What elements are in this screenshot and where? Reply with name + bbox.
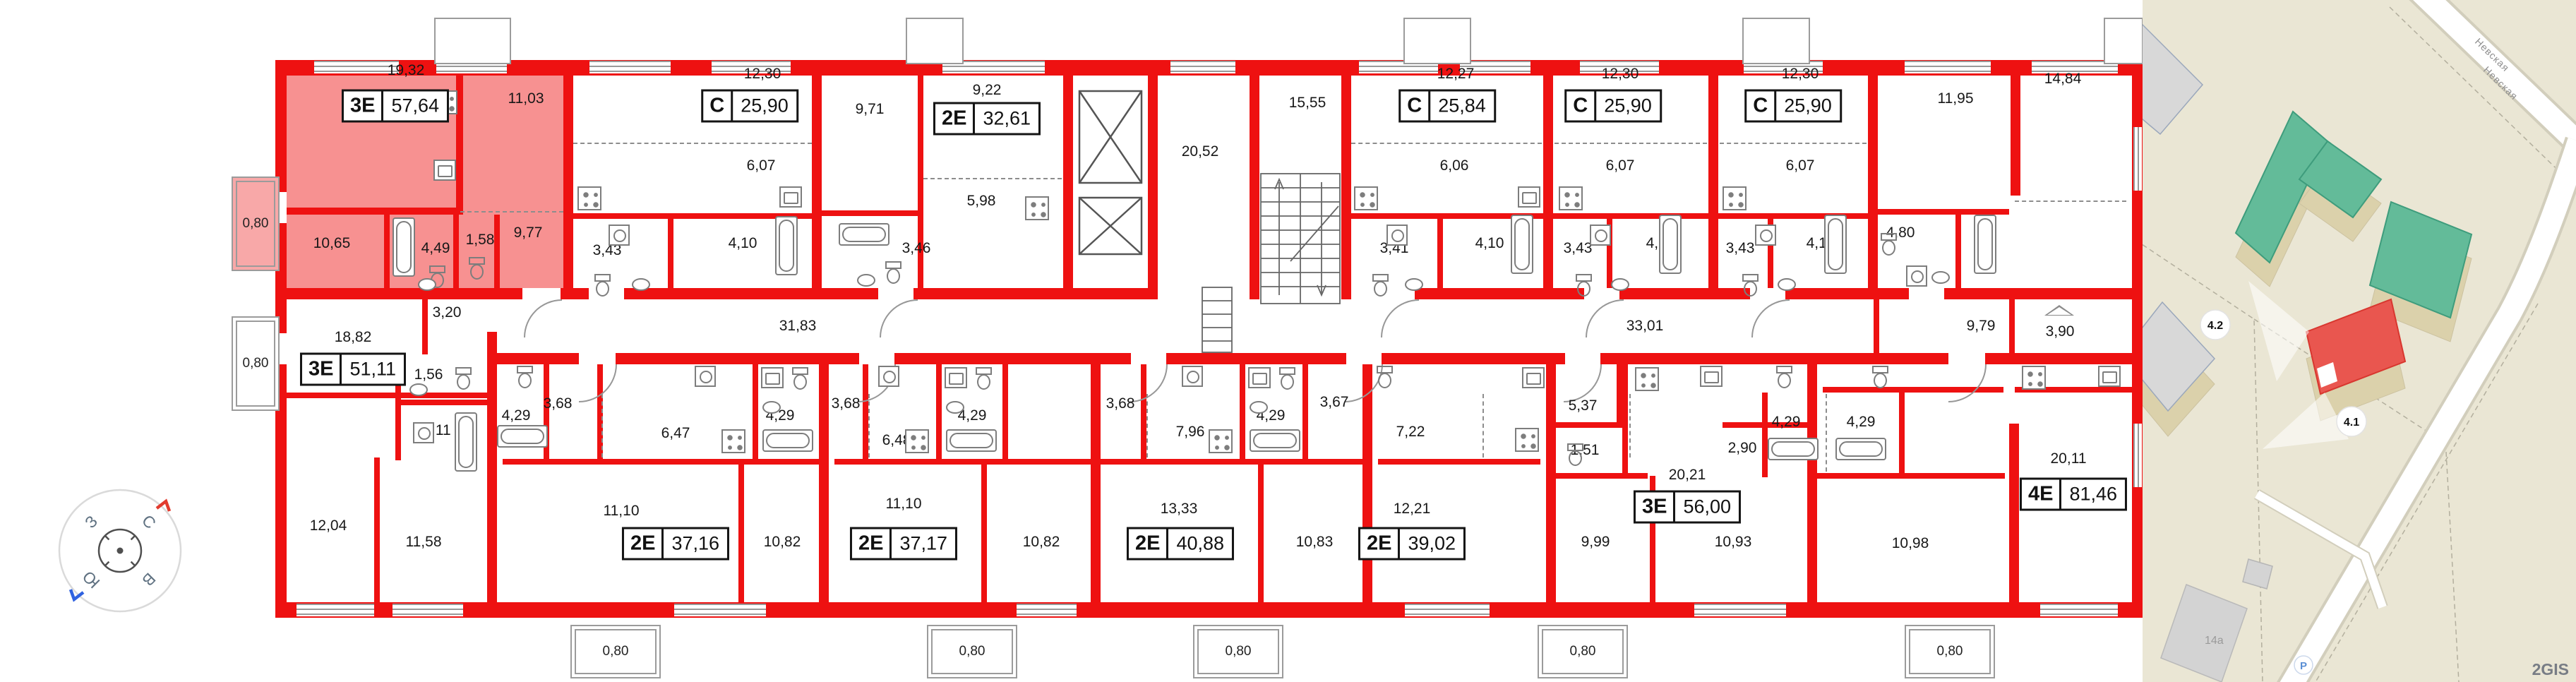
sink-icon	[779, 186, 802, 208]
wall	[1556, 422, 1622, 428]
apartment-badge-selected[interactable]: 3Е57,64	[342, 90, 449, 123]
basin-icon	[946, 401, 964, 414]
door-swing-icon	[579, 364, 617, 402]
apartment-area-value: 37,17	[892, 530, 955, 558]
door-swing-icon	[1751, 299, 1790, 337]
stove-icon	[1515, 428, 1539, 452]
toilet-icon	[1776, 366, 1793, 388]
wall	[1091, 364, 1101, 602]
balcony-area-label: 0,80	[243, 356, 269, 371]
room-area-label: 9,77	[514, 225, 543, 241]
apartment-type-label: С	[1747, 92, 1776, 121]
wall	[1002, 364, 1008, 460]
basin-icon	[1931, 271, 1950, 284]
wall	[1341, 288, 2132, 299]
door-opening	[1909, 288, 1944, 299]
zone-dashed-line	[2015, 201, 2126, 202]
stove-icon	[1025, 196, 1049, 220]
room-area-label: 7,22	[1396, 424, 1425, 441]
mini-map[interactable]: 14a Невская Невская 4.2 4.1 P 2GIS	[2143, 0, 2576, 682]
washer-icon	[1755, 225, 1776, 246]
apartment-badge[interactable]: С25,90	[701, 90, 798, 123]
wall	[2011, 76, 2020, 196]
wall	[487, 353, 579, 364]
room-area-label: 3,90	[2046, 323, 2075, 340]
room-area-label: 15,55	[1289, 95, 1326, 112]
wall	[1543, 76, 1553, 299]
toilet-icon	[1567, 443, 1584, 466]
room-area-label: 10,65	[313, 235, 351, 252]
sink-icon	[433, 160, 456, 181]
tub-h-icon	[839, 223, 889, 246]
apartment-plan-page: 0,800,800,800,800,800,800,8019,3211,0310…	[0, 0, 2576, 682]
wall	[1600, 353, 1809, 364]
wall	[738, 465, 744, 602]
apartment-type-label: С	[1566, 92, 1596, 121]
wall	[1708, 76, 1718, 299]
wall	[1148, 76, 1158, 299]
basin-icon	[418, 278, 436, 291]
door-swing-icon	[1564, 364, 1602, 402]
window	[1017, 604, 1077, 616]
wall	[1955, 215, 1961, 288]
balcony-area-label: 0,80	[603, 644, 629, 659]
wall	[275, 602, 2143, 618]
toilet-icon	[517, 366, 534, 388]
stove-icon	[2022, 366, 2046, 390]
stove-icon	[905, 429, 929, 453]
room-area-label: 18,82	[335, 329, 372, 346]
stove-icon	[1723, 186, 1747, 210]
room-area-label: 12,30	[1602, 66, 1639, 83]
washer-icon	[1386, 225, 1408, 246]
balcony-area-label: 0,80	[1937, 644, 1963, 659]
wall	[1382, 353, 1565, 364]
hanger-icon	[2044, 299, 2075, 321]
tub-h-icon	[497, 425, 548, 448]
toilet-icon	[455, 367, 472, 390]
map-badge-42[interactable]: 4.2	[2200, 310, 2230, 340]
room-area-label: 3,68	[1106, 395, 1135, 412]
map-provider-logo: 2GIS	[2532, 660, 2569, 678]
room-area-label: 12,27	[1437, 66, 1475, 83]
compass-north-label: С	[138, 511, 160, 532]
toilet-icon	[792, 367, 809, 390]
facade-bay	[2104, 18, 2143, 64]
apartment-type-label: 2Е	[1360, 530, 1400, 558]
toilet-icon	[1872, 366, 1889, 388]
room-area-label: 10,82	[764, 534, 801, 551]
wall	[1258, 465, 1264, 602]
room-area-label: 3,68	[832, 395, 861, 412]
apartment-area-value: 25,90	[1776, 92, 1840, 121]
basin-icon	[1405, 278, 1423, 291]
zone-dashed-line	[1826, 394, 1827, 472]
wall	[287, 208, 460, 215]
wall	[1556, 473, 1648, 479]
sink-icon	[1700, 366, 1723, 387]
apartment-type-label: С	[1401, 92, 1430, 121]
apartment-area-value: 25,90	[1596, 92, 1660, 121]
tub-v-icon	[1824, 215, 1847, 274]
wall	[2009, 299, 2015, 356]
wall	[1378, 459, 1540, 465]
zone-dashed-line	[460, 211, 563, 213]
floor-plan[interactable]: 0,800,800,800,800,800,800,8019,3211,0310…	[0, 0, 2143, 682]
window	[589, 61, 671, 73]
wall	[1166, 353, 1346, 364]
apartment-badge[interactable]: 2Е32,61	[933, 102, 1041, 136]
svg-text:4.1: 4.1	[2344, 417, 2359, 429]
room-area-label: 4,10	[729, 235, 757, 252]
washer-icon	[695, 366, 716, 387]
sink-icon	[1518, 186, 1540, 208]
room-area-label: 13,33	[1161, 501, 1198, 518]
apartment-badge[interactable]: 2Е37,17	[850, 527, 957, 561]
wall	[1807, 364, 1817, 602]
wall	[1546, 364, 1556, 602]
zone-dashed-line	[1554, 143, 1707, 144]
room-area-label: 19,32	[388, 62, 425, 79]
window	[1905, 61, 1991, 73]
tub-v-icon	[455, 412, 477, 472]
wall	[1878, 209, 2009, 215]
compass-west-label: З	[81, 512, 101, 532]
apartment-type-label: 2Е	[935, 104, 975, 133]
balcony: 0,80	[1905, 625, 1995, 678]
wall	[981, 465, 987, 602]
apartment-badge[interactable]: 2Е39,02	[1358, 527, 1466, 561]
wall	[1063, 288, 1158, 299]
washer-icon	[1182, 366, 1203, 387]
room-area-label: 10,82	[1023, 534, 1060, 551]
apartment-badge[interactable]: 3Е56,00	[1634, 491, 1741, 524]
room-area-label: 1,58	[466, 232, 495, 249]
toilet-icon	[1377, 366, 1394, 388]
room-area-label: 4,10	[1475, 235, 1504, 252]
facade-bay	[1403, 18, 1471, 64]
balcony: 0,80	[1538, 625, 1628, 678]
room-area-label: 11,58	[406, 534, 442, 551]
stove-icon	[1635, 367, 1659, 391]
apartment-badge[interactable]: 4Е81,46	[2020, 478, 2127, 511]
tub-h-icon	[1835, 438, 1886, 460]
zone-dashed-line	[868, 394, 870, 457]
apartment-area-value: 25,84	[1430, 92, 1494, 121]
facade-bay	[1742, 18, 1810, 64]
svg-text:P: P	[2300, 660, 2307, 672]
zone-dashed-line	[1629, 394, 1631, 457]
wall	[1899, 393, 1905, 477]
wall	[936, 364, 942, 460]
wall	[494, 215, 500, 288]
wall	[819, 364, 829, 602]
window	[1694, 604, 1786, 616]
room-area-label: 12,04	[310, 518, 347, 534]
wall	[812, 76, 822, 299]
svg-text:4.2: 4.2	[2207, 320, 2223, 332]
balcony: 0,80	[232, 177, 280, 271]
room-area-label: 5,37	[1569, 397, 1598, 414]
apartment-badge[interactable]: С25,90	[1744, 90, 1842, 123]
apartment-area-value: 51,11	[342, 355, 404, 384]
wall	[1341, 76, 1351, 299]
basin-icon	[409, 383, 428, 396]
door-swing-icon	[880, 299, 918, 337]
apartment-badge[interactable]: 2Е40,88	[1127, 527, 1234, 561]
wall	[563, 76, 573, 299]
wall	[1817, 473, 2005, 479]
sink-icon	[761, 367, 784, 388]
toilet-icon	[1372, 274, 1389, 297]
sink-icon	[945, 367, 967, 388]
window	[1170, 61, 1235, 73]
apartment-area-value: 57,64	[383, 92, 447, 121]
elevator-shafts-icon	[1076, 88, 1146, 263]
apartment-badge[interactable]: С25,84	[1398, 90, 1496, 123]
room-area-label: 3,43	[1564, 240, 1593, 257]
wall	[1101, 459, 1362, 465]
room-area-label: 3,67	[1320, 394, 1349, 411]
apartment-area-value: 25,90	[733, 92, 796, 121]
wall	[453, 215, 459, 288]
staircase-icon	[1258, 168, 1343, 309]
toilet-icon	[1576, 274, 1593, 297]
wall	[503, 459, 819, 465]
balcony: 0,80	[232, 316, 280, 411]
wall	[422, 299, 428, 354]
room-area-label: 11,10	[886, 496, 922, 513]
apartment-area-value: 81,46	[2061, 480, 2125, 509]
wall	[1874, 299, 1879, 356]
window	[1405, 604, 1490, 616]
wall	[374, 457, 380, 602]
tub-v-icon	[1511, 215, 1533, 274]
apartment-badge[interactable]: 2Е37,16	[622, 527, 729, 561]
zone-dashed-line	[1351, 143, 1542, 144]
room-area-label: 10,83	[1296, 534, 1334, 551]
zone-dashed-line	[923, 178, 1062, 179]
room-area-label: 3,43	[1726, 240, 1755, 257]
room-area-label: 31,83	[779, 318, 817, 335]
washer-icon	[1590, 225, 1611, 246]
window	[296, 604, 374, 616]
apartment-badge[interactable]: 3Е51,11	[300, 353, 406, 386]
wall	[834, 459, 1091, 465]
washer-icon	[878, 366, 899, 387]
apartment-type-label: 3Е	[1636, 493, 1675, 522]
room-area-label: 9,99	[1581, 534, 1610, 551]
wall	[1240, 364, 1245, 460]
room-area-label: 10,98	[1892, 535, 1929, 552]
apartment-type-label: 2Е	[1129, 530, 1168, 558]
wall	[1437, 219, 1443, 288]
wall	[894, 353, 1131, 364]
room-area-label: 6,07	[747, 157, 776, 174]
wall	[1302, 364, 1308, 460]
stove-icon	[1354, 186, 1378, 210]
wall	[1362, 364, 1372, 602]
apartment-area-value: 32,61	[975, 104, 1038, 133]
wall	[1985, 353, 2132, 364]
balcony: 0,80	[570, 625, 661, 678]
apartment-type-label: 2Е	[852, 530, 892, 558]
balcony-area-label: 0,80	[959, 644, 986, 659]
tub-h-icon	[762, 429, 813, 452]
window	[2133, 424, 2142, 487]
stove-icon	[577, 186, 601, 210]
wall	[616, 353, 859, 364]
zone-dashed-line	[1146, 394, 1148, 457]
room-area-label: 9,71	[856, 101, 885, 118]
entrance-steps-icon	[1200, 285, 1234, 354]
wall	[1063, 76, 1073, 299]
window	[393, 604, 463, 616]
tub-h-icon	[946, 429, 997, 452]
compass-south-label: Ю	[79, 568, 104, 592]
room-area-label: 20,11	[2051, 450, 2087, 467]
door-swing-icon	[1586, 299, 1624, 337]
room-area-label: 6,47	[661, 425, 690, 442]
sink-icon	[1522, 367, 1545, 388]
wall	[1617, 364, 1622, 426]
room-area-label: 9,79	[1967, 318, 1996, 335]
basin-icon	[1250, 401, 1268, 414]
room-area-label: 12,30	[1782, 66, 1819, 83]
stove-icon	[721, 429, 745, 453]
apartment-type-label: С	[703, 92, 733, 121]
compass-east-label: В	[138, 569, 159, 590]
washer-icon	[413, 422, 434, 443]
room-area-label: 10,93	[1715, 534, 1752, 551]
wall	[822, 210, 921, 216]
apartment-area-value: 39,02	[1400, 530, 1463, 558]
room-area-label: 6,06	[1440, 157, 1469, 174]
basin-icon	[857, 274, 875, 287]
balcony: 0,80	[1193, 625, 1283, 678]
door-opening	[522, 288, 561, 299]
wall	[1762, 393, 1768, 477]
door-swing-icon	[1948, 364, 1987, 402]
wall	[1553, 213, 1708, 219]
window	[2133, 127, 2142, 191]
door-opening	[878, 288, 913, 299]
map-badge-41[interactable]: 4.1	[2337, 407, 2366, 436]
map-parking-icon: P	[2294, 656, 2313, 674]
apartment-area-value: 56,00	[1675, 493, 1739, 522]
wall	[2009, 424, 2019, 602]
wall	[1868, 76, 1878, 299]
room-area-label: 3,20	[433, 304, 462, 321]
wall	[287, 288, 1063, 299]
apartment-area-value: 37,16	[664, 530, 727, 558]
tub-h-icon	[1250, 429, 1300, 452]
room-area-label: 2,90	[1728, 440, 1757, 457]
room-area-label: 6,07	[1606, 157, 1635, 174]
toilet-icon	[469, 257, 486, 280]
washer-icon	[609, 225, 630, 246]
window	[2040, 604, 2118, 616]
toilet-icon	[594, 274, 611, 297]
wall	[287, 393, 493, 398]
basin-icon	[762, 401, 781, 414]
toilet-icon	[1279, 367, 1296, 390]
room-area-label: 12,30	[744, 66, 781, 83]
zone-dashed-line	[573, 143, 812, 144]
facade-bay	[906, 18, 964, 64]
wall	[668, 219, 673, 288]
sink-icon	[2098, 366, 2121, 387]
room-area-label: 9,22	[973, 82, 1002, 99]
tub-v-icon	[1659, 215, 1682, 274]
wall	[1622, 364, 1628, 477]
room-area-label: 5,98	[967, 193, 996, 210]
basin-icon	[1778, 278, 1796, 291]
wall	[753, 364, 758, 460]
apartment-type-label: 2Е	[624, 530, 664, 558]
balcony-area-label: 0,80	[1226, 644, 1252, 659]
door-swing-icon	[1381, 299, 1419, 337]
compass: С В Ю З	[55, 486, 185, 616]
tub-v-icon	[775, 216, 798, 275]
zone-dashed-line	[1720, 143, 1867, 144]
room-area-label: 4,49	[421, 240, 450, 257]
wall	[401, 400, 487, 405]
apartment-type-label: 3Е	[344, 92, 383, 121]
map-building-14a-label: 14a	[2205, 635, 2224, 647]
room-area-label: 6,07	[1786, 157, 1815, 174]
stove-icon	[1209, 429, 1233, 453]
room-area-label: 11,95	[1938, 90, 1974, 107]
room-area-label: 1,56	[414, 366, 443, 383]
washer-icon	[1906, 265, 1927, 287]
apartment-type-label: 4Е	[2022, 480, 2061, 509]
room-area-label: 14,84	[2044, 71, 2082, 88]
room-area-label: 11,10	[604, 503, 640, 520]
room-area-label: 12,21	[1394, 501, 1431, 518]
room-area-label: 33,01	[1627, 318, 1664, 335]
zone-dashed-line	[1482, 394, 1484, 457]
window	[674, 604, 766, 616]
tub-h-icon	[1768, 438, 1819, 460]
toilet-icon	[1881, 233, 1898, 256]
stove-icon	[1559, 186, 1583, 210]
room-area-label: 20,21	[1669, 467, 1706, 484]
room-area-label: 4,29	[502, 407, 531, 424]
room-area-label: 4,29	[1847, 414, 1876, 431]
room-area-label: 11,03	[508, 90, 544, 107]
balcony: 0,80	[927, 625, 1017, 678]
toilet-icon	[1742, 274, 1759, 297]
facade-bay	[434, 18, 511, 64]
tub-v-icon	[1974, 215, 1996, 274]
wall	[487, 332, 497, 602]
wall	[384, 215, 390, 288]
window	[314, 61, 399, 73]
room-area-label: 4,29	[1772, 414, 1801, 431]
room-area-label: 7,96	[1176, 424, 1205, 441]
balcony-area-label: 0,80	[1570, 644, 1596, 659]
apartment-type-label: 3Е	[302, 355, 342, 384]
basin-icon	[632, 278, 650, 291]
door-swing-icon	[1130, 364, 1168, 402]
sink-icon	[1248, 367, 1271, 388]
toilet-icon	[976, 367, 993, 390]
room-area-label: 3,68	[544, 395, 573, 412]
apartment-area-value: 40,88	[1168, 530, 1232, 558]
apartment-badge[interactable]: С25,90	[1564, 90, 1662, 123]
door-swing-icon	[524, 299, 562, 337]
